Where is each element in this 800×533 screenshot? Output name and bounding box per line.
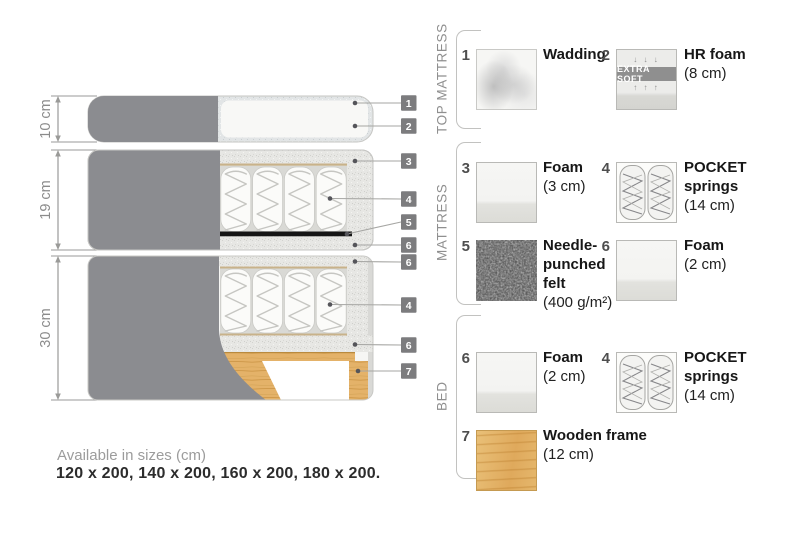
legend-item-size: (14 cm) xyxy=(684,196,800,215)
tag-1: 1 xyxy=(401,95,417,111)
foam-swatch xyxy=(476,352,537,413)
needle-felt-layer xyxy=(220,232,352,237)
section-label-bed: BED xyxy=(431,315,453,477)
needle-felt-swatch xyxy=(476,240,537,301)
legend-item-size: (8 cm) xyxy=(684,64,800,83)
legend-item-name: POCKET springs xyxy=(684,158,800,196)
arrows-down-icon: ↓ ↓ ↓ xyxy=(617,56,676,64)
available-sizes-list: 120 x 200, 140 x 200, 160 x 200, 180 x 2… xyxy=(56,465,380,483)
legend-num-felt: 5 xyxy=(450,238,470,255)
available-sizes-caption: Available in sizes (cm) xyxy=(57,447,206,464)
legend-item-size: (12 cm) xyxy=(543,445,675,464)
tag-4: 4 xyxy=(401,191,417,207)
pocket-springs-illustration xyxy=(617,163,676,222)
legend-num-foam2: 6 xyxy=(590,238,610,255)
mattress-fabric xyxy=(88,150,220,250)
legend-item-size: (14 cm) xyxy=(684,386,800,405)
legend-item-size: (2 cm) xyxy=(684,255,800,274)
legend-item-pocket-springs: POCKET springs (14 cm) xyxy=(684,158,800,215)
legend-item-name: Wooden frame xyxy=(543,426,675,445)
legend-num-wadding: 1 xyxy=(450,47,470,64)
diagram-tags: 1 2 3 4 5 6 6 4 6 7 xyxy=(401,95,417,379)
tag-2: 2 xyxy=(401,118,417,134)
svg-text:1: 1 xyxy=(406,98,412,110)
wooden-frame-swatch xyxy=(476,430,537,491)
tag-3: 3 xyxy=(401,153,417,169)
legend-item-wooden-frame: Wooden frame (12 cm) xyxy=(543,426,675,464)
legend-num-foam3: 3 xyxy=(450,160,470,177)
measurement-label: 19 cm xyxy=(38,180,54,220)
svg-text:4: 4 xyxy=(406,300,412,312)
tag-6: 6 xyxy=(401,237,417,253)
legend-num-pocket-springs: 4 xyxy=(590,160,610,177)
bed-section xyxy=(88,256,373,400)
tag-5: 5 xyxy=(401,214,417,230)
felt-texture xyxy=(476,240,537,301)
measurement-label: 10 cm xyxy=(38,99,54,139)
tag-6b: 6 xyxy=(401,254,417,270)
top-mattress-fabric xyxy=(88,96,218,142)
measurement-label: 30 cm xyxy=(38,308,54,348)
svg-text:4: 4 xyxy=(406,194,412,206)
svg-text:6: 6 xyxy=(406,240,412,252)
section-label-top-mattress: TOP MATTRESS xyxy=(431,30,453,127)
svg-text:6: 6 xyxy=(406,340,412,352)
foam-swatch xyxy=(476,162,537,223)
pocket-springs-illustration xyxy=(617,353,676,412)
foam-swatch xyxy=(616,240,677,301)
legend-item-name: Foam xyxy=(684,236,800,255)
legend-num-hr-foam: 2 xyxy=(590,47,610,64)
legend-num-bed-foam: 6 xyxy=(450,350,470,367)
pocket-springs-swatch xyxy=(616,162,677,223)
hr-foam-swatch: ↓ ↓ ↓ EXTRA SOFT ↑ ↑ ↑ xyxy=(616,49,677,110)
svg-text:6: 6 xyxy=(406,257,412,269)
wadding-swatch xyxy=(476,49,537,110)
tag-4b: 4 xyxy=(401,297,417,313)
svg-text:7: 7 xyxy=(406,366,412,378)
arrows-up-icon: ↑ ↑ ↑ xyxy=(617,84,676,92)
bed-construction-infographic: 10 cm 19 cm 30 cm xyxy=(0,0,800,533)
wooden-rail xyxy=(220,352,355,361)
legend-item-foam2: Foam (2 cm) xyxy=(684,236,800,274)
top-mattress-section xyxy=(88,96,373,142)
top-mattress-foam-core xyxy=(221,101,368,138)
svg-text:3: 3 xyxy=(406,156,412,168)
pocket-springs-swatch xyxy=(616,352,677,413)
legend-item-name: HR foam xyxy=(684,45,800,64)
legend-num-bed-springs: 4 xyxy=(590,350,610,367)
legend-item-name: POCKET springs xyxy=(684,348,800,386)
svg-text:2: 2 xyxy=(406,121,412,133)
legend-item-hr-foam: HR foam (8 cm) xyxy=(684,45,800,83)
svg-text:5: 5 xyxy=(406,217,412,229)
legend-num-wooden-frame: 7 xyxy=(450,428,470,445)
tag-7: 7 xyxy=(401,363,417,379)
extra-soft-band: EXTRA SOFT xyxy=(617,67,676,81)
wooden-leg xyxy=(349,361,368,400)
legend-item-bed-springs: POCKET springs (14 cm) xyxy=(684,348,800,405)
tag-6c: 6 xyxy=(401,337,417,353)
